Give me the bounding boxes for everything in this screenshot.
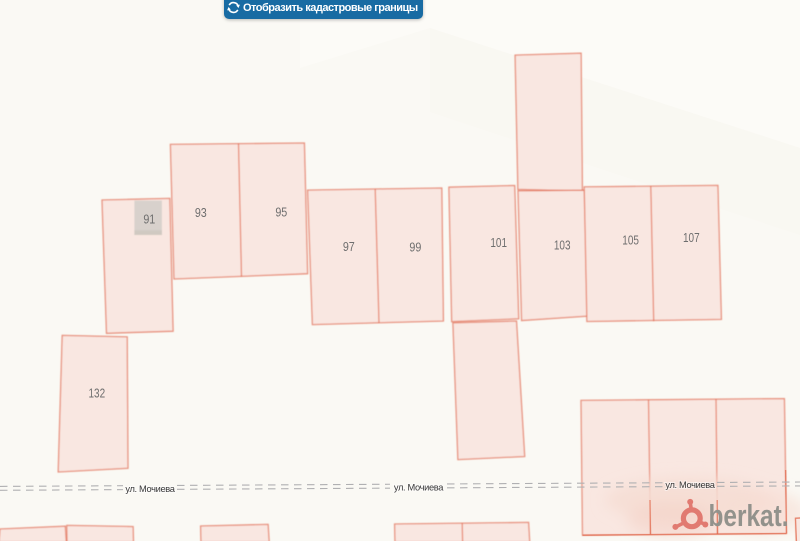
svg-text:ул. Мочиева: ул. Мочиева: [665, 480, 715, 490]
svg-text:berkat.: berkat.: [709, 498, 789, 533]
svg-text:93: 93: [195, 205, 207, 220]
svg-text:107: 107: [683, 232, 700, 245]
svg-text:103: 103: [554, 239, 571, 252]
svg-text:91: 91: [143, 212, 155, 227]
svg-text:99: 99: [409, 240, 421, 255]
svg-text:132: 132: [88, 387, 105, 400]
svg-text:105: 105: [622, 235, 639, 248]
svg-text:95: 95: [275, 204, 287, 219]
svg-text:101: 101: [490, 237, 507, 250]
svg-text:97: 97: [343, 239, 355, 254]
svg-text:ул. Мочиева: ул. Мочиева: [394, 483, 444, 493]
svg-text:ул. Мочиева: ул. Мочиева: [125, 484, 175, 494]
